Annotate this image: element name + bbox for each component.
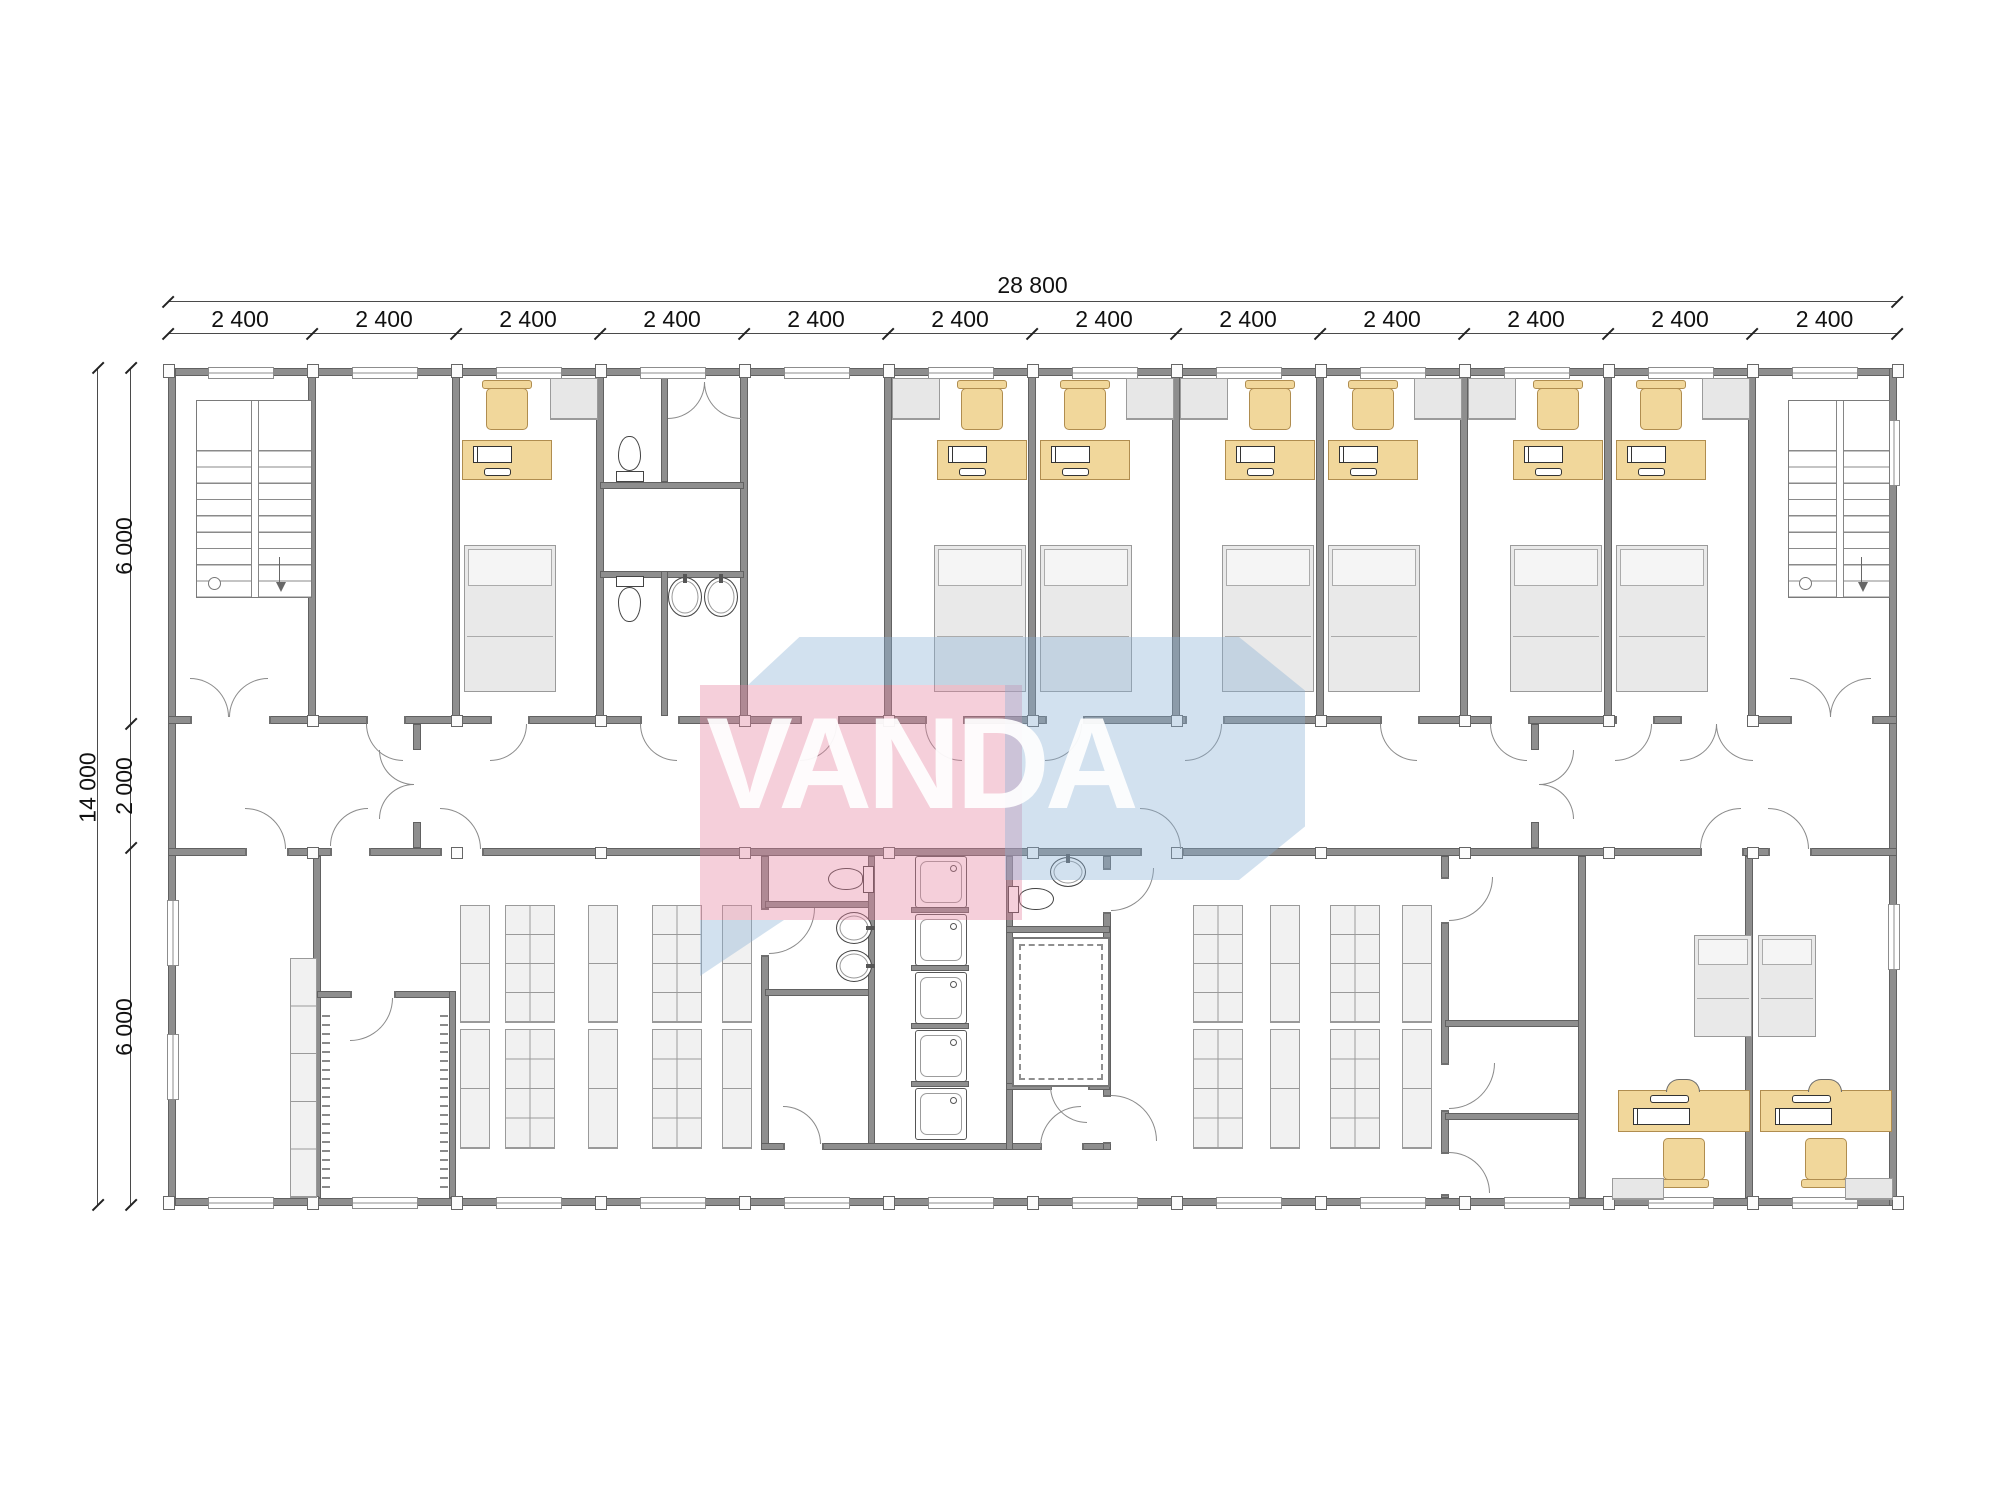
watermark-blue-triangle (700, 920, 784, 976)
watermark-blue-band (748, 637, 1005, 685)
watermark-text: VANDA (702, 692, 1138, 834)
floor-plan-canvas: 28 800 14 000 2 4002 4002 4002 4002 4002… (0, 0, 2000, 1500)
watermark-layer: VANDA (0, 0, 2000, 1500)
